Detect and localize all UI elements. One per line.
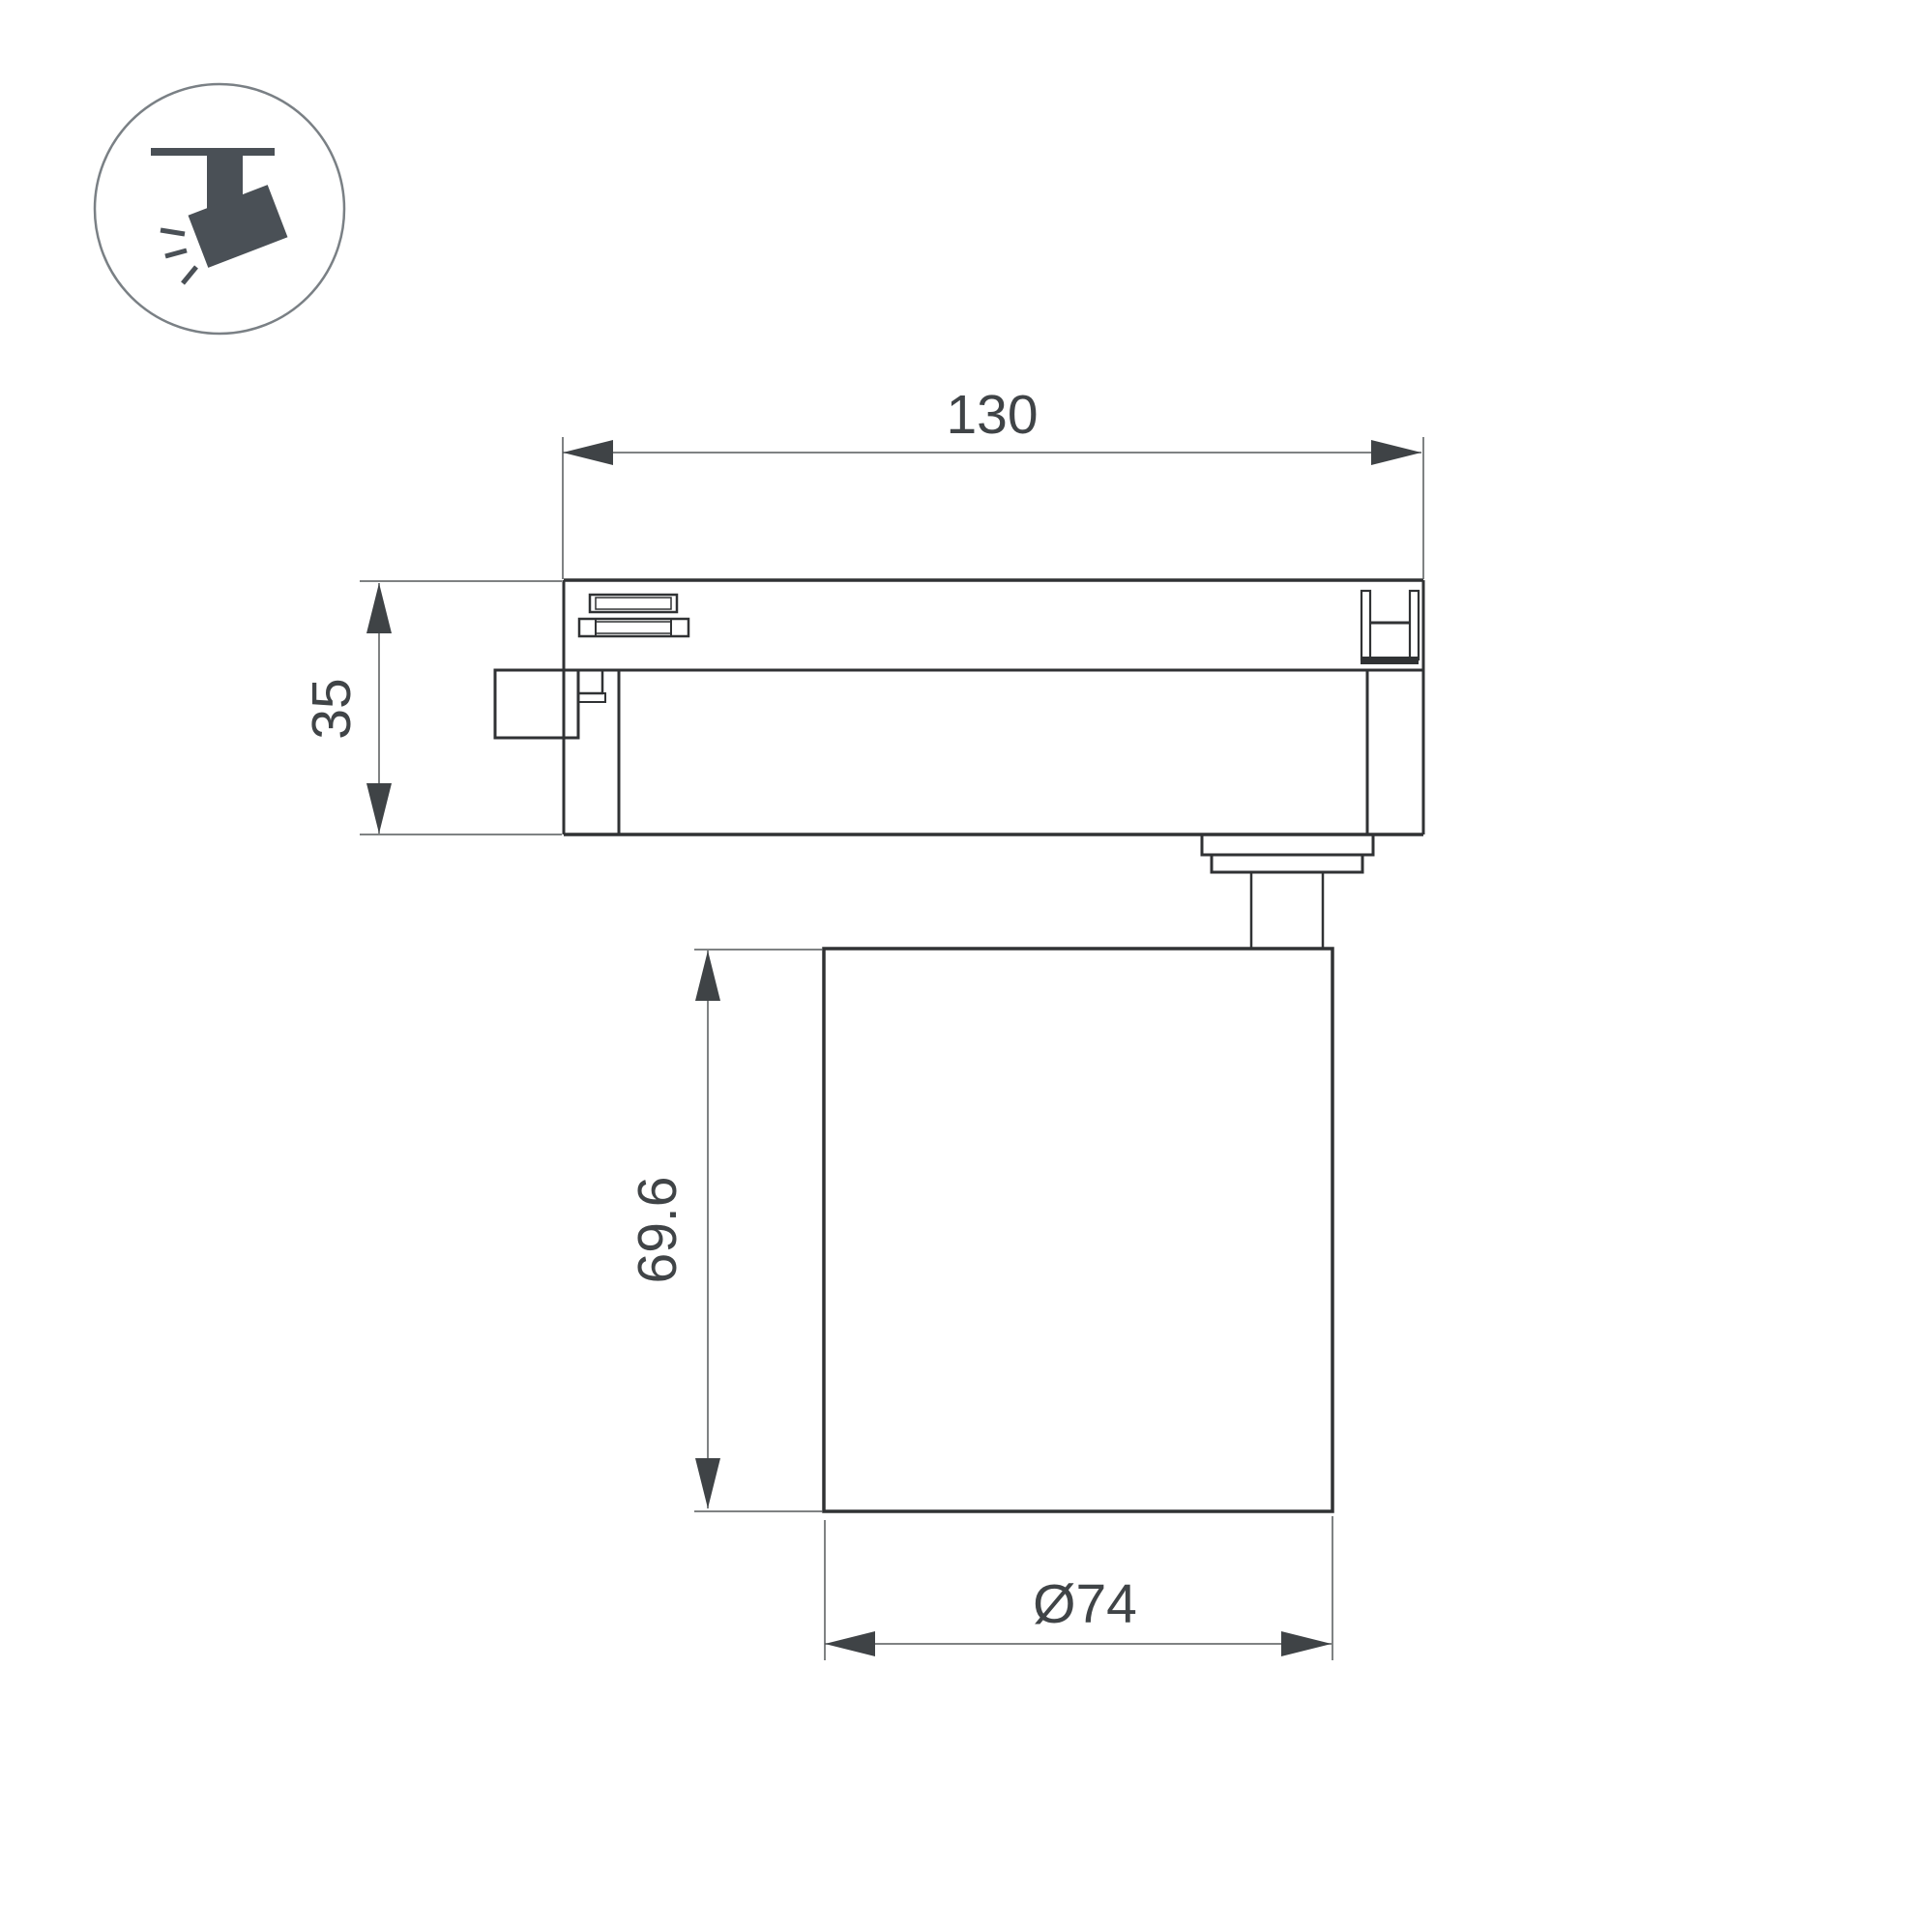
arrowhead-left [825,1631,875,1656]
joint-flange-upper [1202,834,1373,855]
dimension-head-height: 69.6 [627,950,823,1511]
track-contact-lower [579,619,688,636]
arrowhead-left [563,440,613,465]
dimension-head-diameter: Ø74 [825,1516,1332,1660]
track-contact-upper [590,595,677,612]
technical-drawing-page: 130 35 69.6 Ø74 [0,0,1932,1932]
lamp-head-body [824,949,1332,1511]
track-light-dimension-drawing: 130 35 69.6 Ø74 [0,0,1932,1932]
dimension-label-69-6: 69.6 [627,1177,688,1284]
dimension-adapter-height: 35 [301,581,562,834]
dimension-overall-width: 130 [563,384,1423,579]
dimension-label-d74: Ø74 [1033,1573,1137,1635]
arrowhead-right [1281,1631,1332,1656]
arrowhead-right [1371,440,1421,465]
track-spotlight-icon [95,84,344,334]
joint-flange-lower [1212,855,1362,872]
spring-clip [1361,591,1419,664]
switch-block [495,670,578,738]
dimension-label-35: 35 [301,678,363,739]
arrowhead-up [695,951,720,1001]
arrowhead-down [366,783,392,834]
latch-step [578,670,602,693]
latch-lip [578,693,605,702]
arrowhead-up [366,583,392,633]
arrowhead-down [695,1458,720,1508]
dimension-label-130: 130 [946,384,1038,446]
track-adapter-housing [495,580,1423,949]
